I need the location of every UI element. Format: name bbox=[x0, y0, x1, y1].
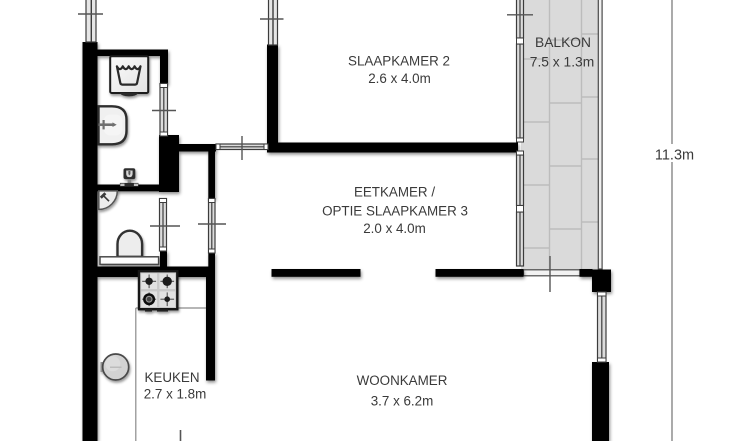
svg-text:2.7 x 1.8m: 2.7 x 1.8m bbox=[144, 387, 207, 402]
svg-text:11.3m: 11.3m bbox=[655, 148, 694, 164]
svg-text:EETKAMER /: EETKAMER / bbox=[354, 185, 435, 200]
svg-text:WOONKAMER: WOONKAMER bbox=[357, 373, 448, 388]
svg-text:KEUKEN: KEUKEN bbox=[144, 370, 199, 385]
svg-text:2.0 x 4.0m: 2.0 x 4.0m bbox=[363, 221, 426, 236]
svg-text:BALKON: BALKON bbox=[535, 35, 591, 50]
svg-text:3.7 x 6.2m: 3.7 x 6.2m bbox=[371, 394, 434, 409]
svg-text:7.5 x 1.3m: 7.5 x 1.3m bbox=[530, 55, 594, 70]
svg-text:SLAAPKAMER 2: SLAAPKAMER 2 bbox=[348, 54, 450, 69]
svg-text:2.6 x 4.0m: 2.6 x 4.0m bbox=[368, 71, 431, 86]
svg-text:OPTIE SLAAPKAMER 3: OPTIE SLAAPKAMER 3 bbox=[322, 204, 468, 219]
